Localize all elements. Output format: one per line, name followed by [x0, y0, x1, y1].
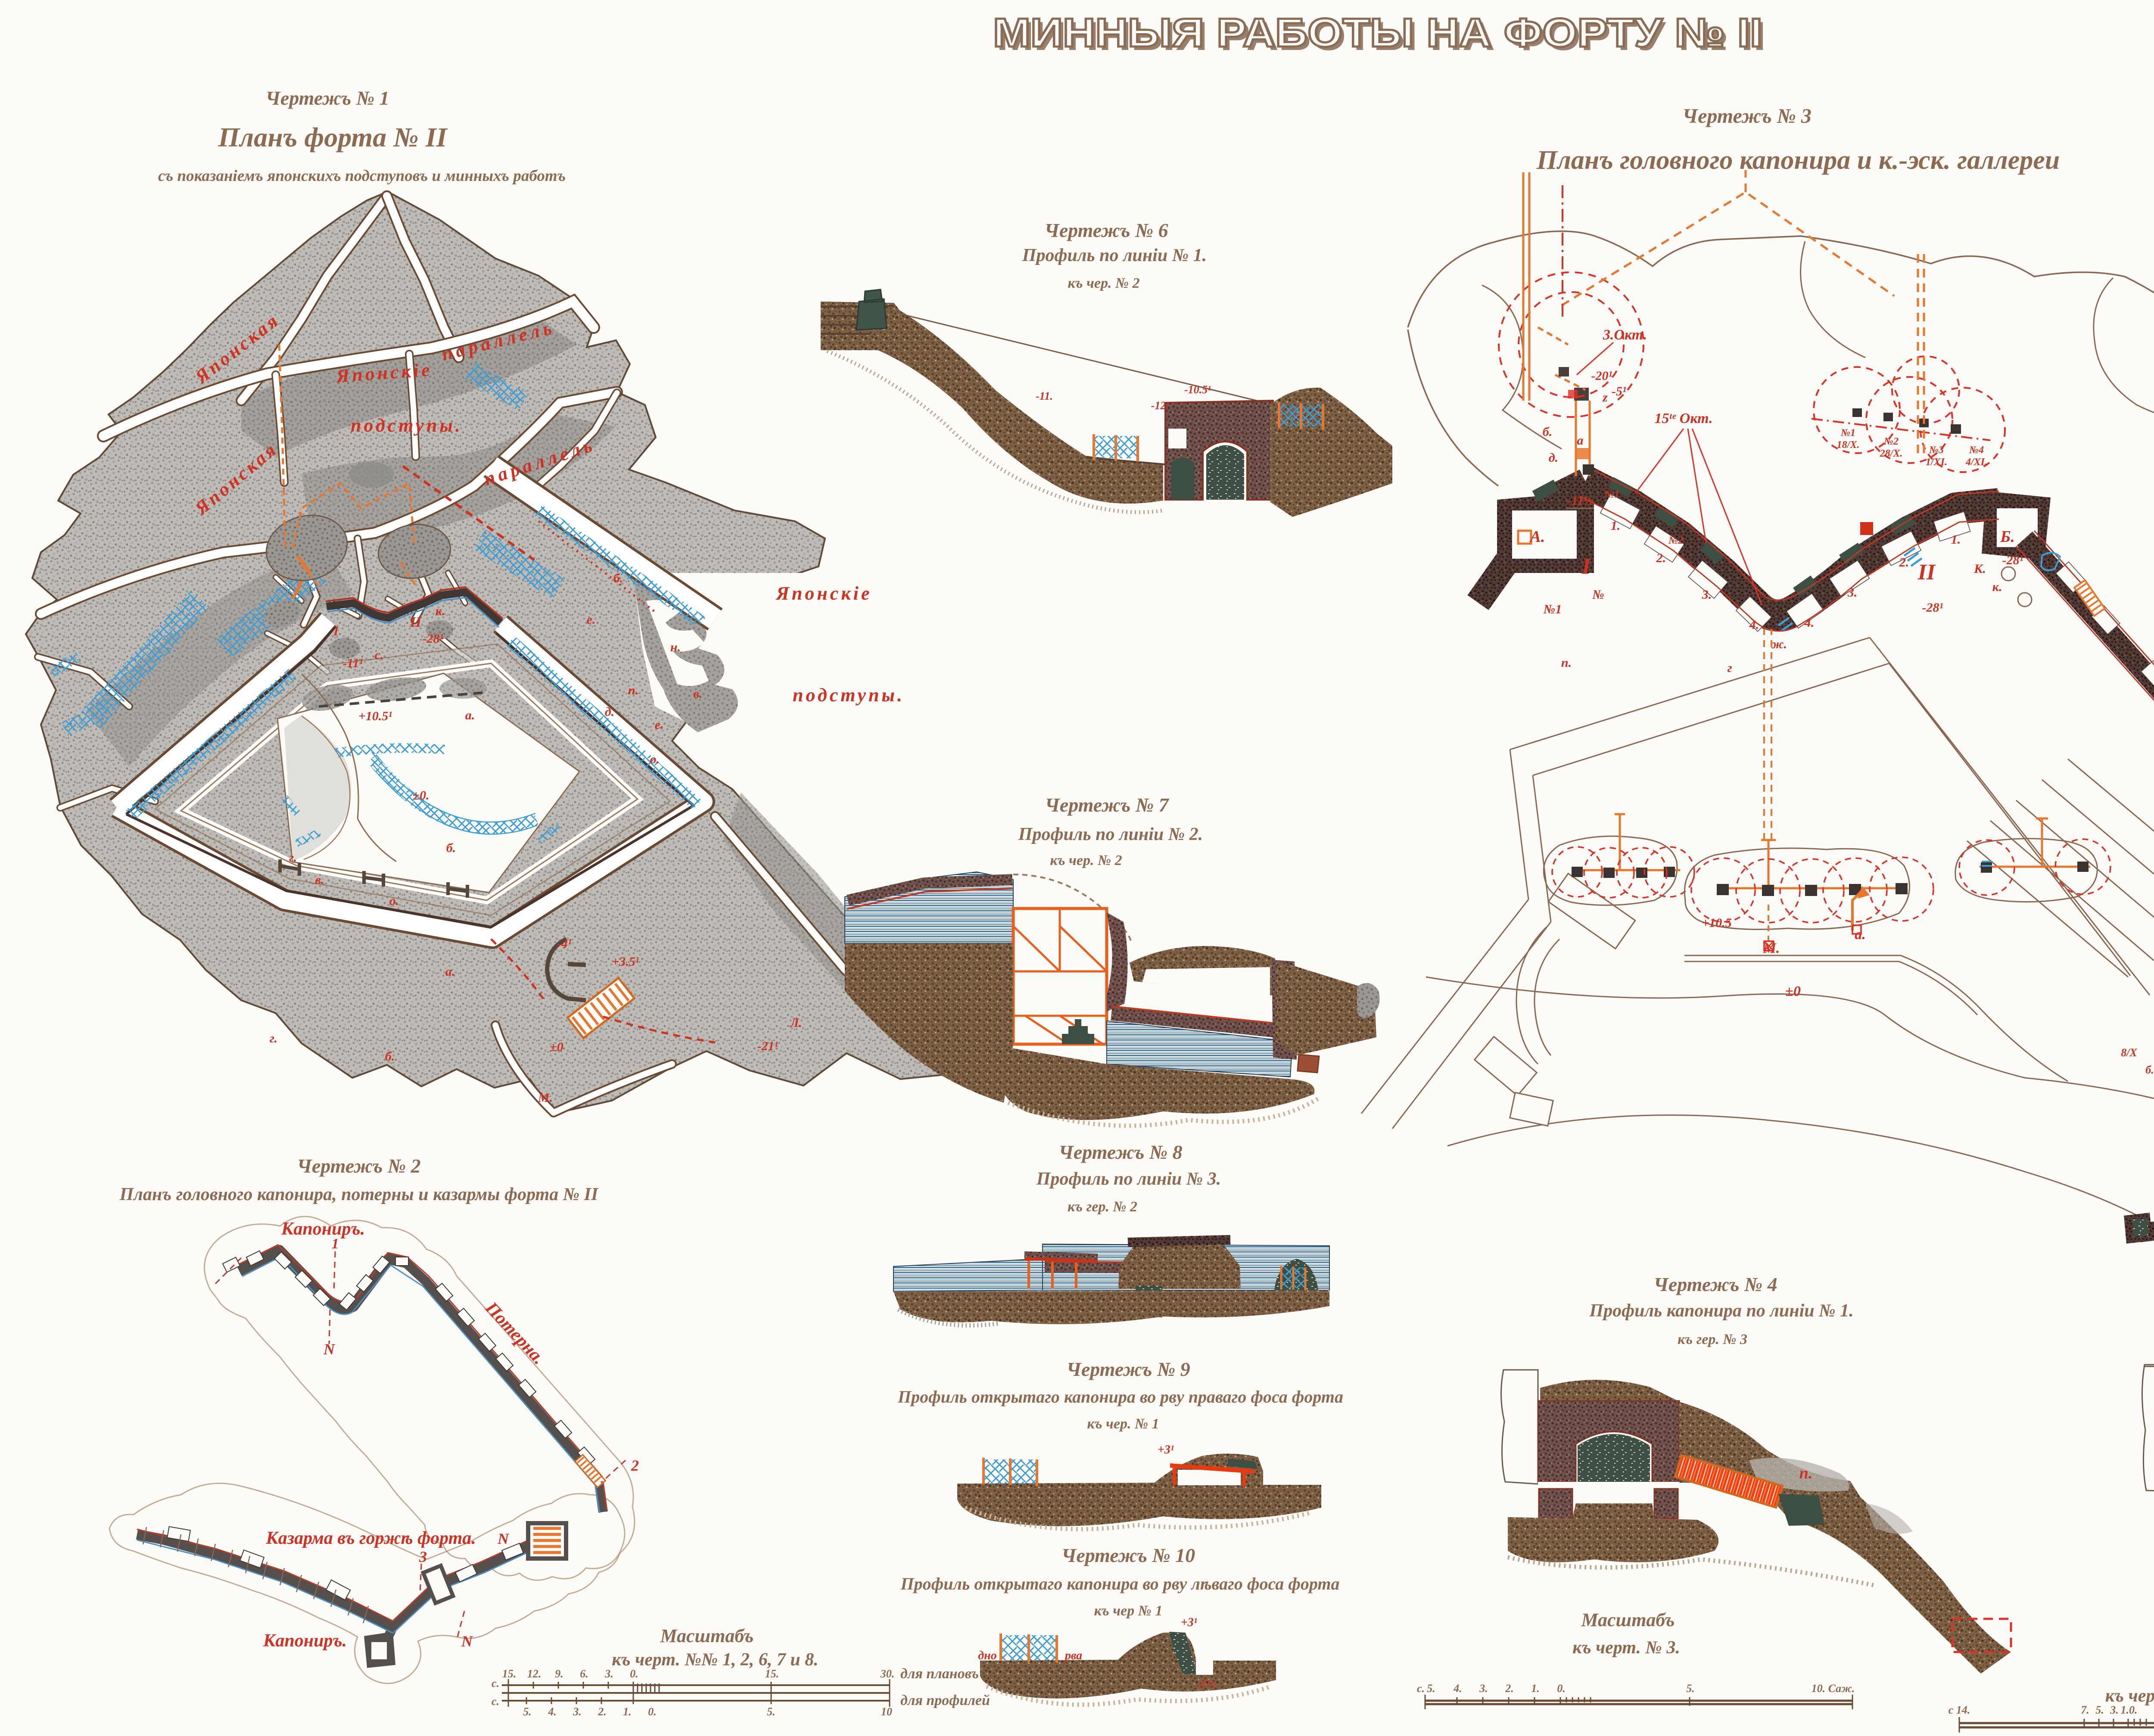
svg-text:-28¹: -28¹ [1922, 600, 1943, 615]
svg-text:къ чер № 1: къ чер № 1 [1094, 1603, 1163, 1619]
svg-text:28/X.: 28/X. [1880, 448, 1903, 459]
svg-text:Чертежъ № 8: Чертежъ № 8 [1058, 1141, 1182, 1163]
svg-text:Чертежъ № 9: Чертежъ № 9 [1066, 1358, 1190, 1380]
svg-text:2.: 2. [1505, 1682, 1514, 1695]
svg-text:3.: 3. [573, 1705, 582, 1718]
svg-text:для профилей: для профилей [900, 1692, 990, 1708]
svg-text:Казарма въ горжѣ форта.: Казарма въ горжѣ форта. [265, 1528, 476, 1548]
svg-text:Б.: Б. [2000, 528, 2015, 546]
svg-text:-4¹: -4¹ [557, 936, 572, 951]
svg-text:N: N [497, 1530, 510, 1547]
svg-text:М.: М. [538, 1091, 553, 1105]
svg-text:Чертежъ № 6: Чертежъ № 6 [1044, 219, 1168, 241]
svg-text:б.: б. [1543, 425, 1552, 439]
svg-text:о.: о. [389, 894, 399, 908]
svg-text:15.: 15. [502, 1668, 517, 1680]
svg-text:-20¹: -20¹ [1591, 369, 1612, 383]
svg-text:в.: в. [694, 687, 703, 701]
svg-text:+3.5¹: +3.5¹ [612, 955, 639, 969]
svg-text:-12¹: -12¹ [1151, 399, 1169, 412]
svg-text:для плановъ: для плановъ [900, 1666, 979, 1682]
svg-text:подступы.: подступы. [793, 684, 905, 706]
svg-text:8/X: 8/X [2121, 1046, 2137, 1059]
svg-text:МИННЫЯ РАБОТЫ НА ФОРТУ № II: МИННЫЯ РАБОТЫ НА ФОРТУ № II [993, 10, 1762, 55]
svg-text:5.: 5. [1427, 1682, 1435, 1695]
svg-text:4/XI.: 4/XI. [1965, 457, 1987, 468]
svg-text:1.: 1. [623, 1705, 632, 1718]
svg-text:1.0.: 1.0. [2121, 1704, 2138, 1716]
svg-text:Чертежъ № 3: Чертежъ № 3 [1682, 105, 1812, 128]
svg-text:2.: 2. [598, 1705, 607, 1718]
svg-text:подступы.: подступы. [351, 415, 463, 436]
svg-text:к.: к. [436, 604, 445, 618]
svg-text:№: № [1592, 588, 1604, 602]
svg-text:1.: 1. [1531, 1682, 1540, 1695]
svg-text:к.: к. [1992, 580, 2002, 594]
svg-text:с.: с. [375, 648, 384, 662]
svg-text:3: 3 [419, 1548, 427, 1565]
svg-text:в.: в. [315, 873, 324, 887]
svg-text:къ черт. №№ 4, 5, 9 и 10.: къ черт. №№ 4, 5, 9 и 10. [2105, 1686, 2154, 1706]
svg-text:0.: 0. [1557, 1682, 1566, 1695]
svg-text:№3: №3 [1929, 445, 1944, 456]
svg-text:Чертежъ № 10: Чертежъ № 10 [1061, 1544, 1195, 1566]
svg-text:Планъ форта № II: Планъ форта № II [218, 122, 448, 152]
svg-text:Планъ головного капонира, поте: Планъ головного капонира, потерны и каза… [119, 1185, 599, 1204]
svg-text:н.: н. [670, 640, 681, 654]
svg-text:къ гер. № 2: къ гер. № 2 [1068, 1199, 1137, 1215]
svg-text:д.: д. [1549, 451, 1558, 465]
svg-text:4.: 4. [1453, 1682, 1462, 1695]
svg-text:2.: 2. [1899, 555, 1909, 569]
svg-text:0.: 0. [630, 1668, 638, 1680]
svg-text:г.: г. [289, 850, 297, 865]
svg-text:II: II [1917, 560, 1936, 585]
svg-text:г.: г. [270, 1031, 277, 1045]
svg-text:N: N [461, 1633, 473, 1650]
svg-text:с.: с. [1417, 1682, 1425, 1695]
svg-text:-11.: -11. [1036, 390, 1053, 402]
svg-text:е.: е. [655, 718, 664, 732]
svg-text:с.: с. [492, 1677, 499, 1689]
svg-text:-11¹: -11¹ [342, 656, 363, 670]
svg-text:№2: №2 [1883, 436, 1899, 447]
svg-text:Профиль открытаго капонира во: Профиль открытаго капонира во рву лѣваго… [900, 1574, 1340, 1593]
svg-text:II: II [410, 614, 422, 630]
svg-text:1: 1 [332, 1236, 339, 1252]
svg-text:Л.: Л. [789, 1016, 802, 1030]
svg-text:±0.: ±0. [413, 788, 430, 803]
svg-text:5.: 5. [1686, 1682, 1695, 1695]
svg-text:Японскіе: Японскіе [775, 583, 872, 604]
svg-text:къ черт. № 3.: къ черт. № 3. [1572, 1638, 1680, 1658]
svg-text:1.: 1. [1951, 532, 1961, 547]
svg-text:2: 2 [631, 1457, 639, 1474]
svg-text:3.: 3. [2110, 1704, 2119, 1716]
svg-text:б.: б. [613, 571, 623, 585]
svg-text:К.: К. [1973, 562, 1986, 576]
svg-text:15.: 15. [765, 1668, 779, 1680]
svg-text:п.: п. [628, 683, 638, 697]
svg-text:Профиль по линіи № 2.: Профиль по линіи № 2. [1018, 824, 1203, 844]
svg-text:№1: №1 [1604, 489, 1619, 500]
svg-text:№1: №1 [1543, 602, 1562, 616]
svg-text:Капониръ.: Капониръ. [263, 1631, 347, 1651]
svg-text:10. Саж.: 10. Саж. [1812, 1682, 1855, 1695]
svg-text:къ черт. №№ 1, 2, 6, 7 и 8.: къ черт. №№ 1, 2, 6, 7 и 8. [612, 1650, 818, 1670]
svg-text:6.: 6. [580, 1668, 588, 1680]
svg-text:къ гер. № 3: къ гер. № 3 [1678, 1332, 1747, 1347]
svg-text:а.: а. [465, 708, 475, 722]
svg-text:Профиль открытаго капонира во: Профиль открытаго капонира во рву праваг… [897, 1387, 1343, 1406]
svg-text:4.: 4. [1749, 618, 1759, 632]
svg-text:къ чер. № 2: къ чер. № 2 [1050, 852, 1122, 868]
svg-text:Чертежъ № 2: Чертежъ № 2 [297, 1155, 420, 1177]
svg-text:+3¹: +3¹ [1181, 1616, 1197, 1629]
svg-text:I: I [333, 624, 339, 638]
svg-text:б.: б. [2145, 1064, 2154, 1076]
svg-text:9.: 9. [555, 1668, 563, 1680]
svg-text:Профиль по линіи № 3.: Профиль по линіи № 3. [1036, 1169, 1221, 1189]
svg-text:7.: 7. [2081, 1704, 2089, 1716]
svg-text:с 14.: с 14. [1949, 1704, 1970, 1716]
svg-text:Капониръ.: Капониръ. [281, 1219, 365, 1239]
svg-text:рва: рва [1064, 1649, 1082, 1662]
svg-text:z: z [1602, 390, 1608, 404]
svg-text:5.: 5. [2095, 1704, 2104, 1716]
svg-text:±0: ±0 [550, 1040, 563, 1054]
svg-text:+10.5¹: +10.5¹ [358, 709, 392, 723]
svg-text:3.: 3. [604, 1668, 613, 1680]
svg-text:-28¹: -28¹ [423, 632, 444, 646]
svg-text:+10.5: +10.5 [1702, 916, 1732, 930]
svg-text:5.: 5. [523, 1705, 532, 1718]
svg-text:5.: 5. [767, 1705, 775, 1718]
svg-text:Масштабъ: Масштабъ [1581, 1609, 1675, 1630]
svg-text:-1½: -1½ [1197, 1677, 1216, 1691]
svg-text:А.: А. [1529, 528, 1545, 546]
svg-text:+3¹: +3¹ [1158, 1443, 1174, 1456]
svg-text:къ чер. № 1: къ чер. № 1 [1087, 1416, 1159, 1432]
svg-text:с.: с. [492, 1695, 499, 1708]
svg-text:д.: д. [605, 705, 614, 719]
svg-text:I: I [1581, 554, 1591, 579]
svg-text:12.: 12. [527, 1668, 542, 1680]
svg-text:Чертежъ № 4: Чертежъ № 4 [1653, 1273, 1777, 1295]
svg-text:0.: 0. [648, 1705, 657, 1718]
svg-text:№4: №4 [1969, 445, 1984, 456]
svg-text:дно: дно [978, 1649, 996, 1662]
svg-text:2.: 2. [1656, 551, 1666, 565]
svg-text:Масштабъ: Масштабъ [660, 1625, 754, 1646]
svg-text:Профиль капонира по линіи № 1.: Профиль капонира по линіи № 1. [1589, 1301, 1853, 1321]
svg-text:б.: б. [446, 841, 456, 855]
svg-text:съ показаніемъ японскихъ подст: съ показаніемъ японскихъ подступовъ и ми… [158, 167, 566, 185]
svg-text:3.: 3. [1702, 588, 1712, 602]
svg-text:1/XI.: 1/XI. [1926, 457, 1947, 468]
svg-text:ж.: ж. [1771, 637, 1787, 651]
svg-text:-5¹: -5¹ [1612, 384, 1626, 398]
svg-text:№1: №1 [1840, 427, 1855, 439]
svg-text:Чертежъ № 7: Чертежъ № 7 [1045, 794, 1169, 816]
svg-text:-28¹: -28¹ [2002, 553, 2023, 567]
svg-text:№2: №2 [1668, 535, 1683, 546]
svg-text:Планъ головного капонира и к.-: Планъ головного капонира и к.-эск. галле… [1536, 146, 2060, 175]
svg-text:о.: о. [650, 752, 660, 766]
svg-text:Чертежъ № 1: Чертежъ № 1 [265, 87, 389, 109]
svg-text:4.: 4. [1804, 616, 1815, 630]
svg-text:±0: ±0 [1785, 983, 1801, 999]
svg-text:-21¹: -21¹ [757, 1039, 778, 1053]
svg-text:Профиль по линіи № 1.: Профиль по линіи № 1. [1022, 246, 1207, 265]
svg-text:п.: п. [1561, 656, 1572, 670]
svg-text:1.: 1. [1611, 519, 1621, 533]
svg-text:а.: а. [445, 964, 455, 979]
svg-text:е.: е. [587, 613, 596, 627]
svg-text:30.: 30. [880, 1668, 895, 1680]
svg-text:б.: б. [385, 1049, 395, 1064]
svg-text:3.Окт.: 3.Окт. [1603, 327, 1647, 343]
svg-text:15ᵗᵉ Окт.: 15ᵗᵉ Окт. [1655, 411, 1713, 426]
svg-text:-11½: -11½ [1567, 494, 1594, 508]
svg-text:п.: п. [1799, 1464, 1813, 1482]
svg-text:3.: 3. [1479, 1682, 1488, 1695]
svg-text:18/X.: 18/X. [1837, 439, 1860, 451]
svg-text:10: 10 [881, 1705, 892, 1718]
svg-text:-10.5¹: -10.5¹ [1184, 383, 1211, 396]
svg-text:къ чер. № 2: къ чер. № 2 [1068, 275, 1139, 291]
svg-text:а: а [1577, 433, 1584, 448]
svg-text:4.: 4. [548, 1705, 557, 1718]
svg-text:г: г [1727, 661, 1732, 675]
